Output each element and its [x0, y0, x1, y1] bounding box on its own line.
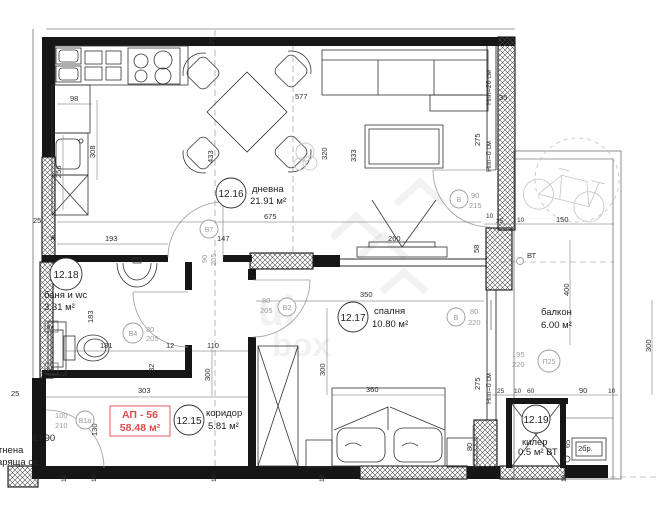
annotation-b1-entry: 100 210 В1а 130 — [55, 411, 99, 436]
window-h-p25: 220 — [512, 360, 525, 369]
window-h-bedroom: 220 — [468, 318, 481, 327]
door-w-b4: 80 — [146, 325, 154, 334]
dim-256: 256 — [54, 165, 63, 178]
room-storage-number: 12.19 — [523, 415, 548, 426]
dim-110: 110 — [207, 341, 219, 350]
room-living-name: дневна — [252, 184, 284, 195]
room-corridor-number: 12.15 — [176, 416, 201, 427]
dim-275-bedroom: 275 — [473, 377, 482, 390]
watermark: ui box — [258, 182, 444, 363]
room-bedroom-name: спалня — [374, 306, 405, 317]
stove — [128, 48, 180, 84]
dim-90: 90 — [579, 386, 587, 395]
room-bedroom-label: 12.17 спалня 10.80 м² — [338, 302, 408, 332]
dim-65: 65 — [563, 440, 572, 448]
dim-60: 60 — [527, 388, 535, 395]
room-storage-area: 0.5 м² ВТ — [518, 447, 558, 458]
dishwasher — [52, 175, 88, 215]
dim-400: 400 — [562, 283, 571, 296]
dim-10-section: 10 — [211, 474, 218, 482]
dim-300-balcony: 300 — [644, 339, 653, 352]
door-w-b1: 100 — [55, 411, 68, 420]
star-mark: * — [50, 232, 56, 249]
window-w-p25: 195 — [512, 350, 525, 359]
dim-360: 360 — [366, 385, 379, 394]
level-npp0-living: Нпп=0 см — [486, 141, 493, 172]
coffee-table — [365, 125, 443, 168]
dim-25-balc: 25 — [496, 218, 504, 225]
door-h-b7: 205 — [209, 253, 218, 266]
dim-260: 260 — [388, 234, 401, 243]
ov-label: ов — [47, 366, 55, 373]
door-offset-130: 130 — [90, 423, 99, 436]
dim-320: 320 — [320, 147, 329, 160]
door-h-balcony: 215 — [469, 201, 482, 210]
dim-80-bed: 80 — [465, 443, 474, 451]
room-bath-number: 12.18 — [53, 270, 78, 281]
floor-plan-svg: ui box — [0, 0, 660, 520]
watermark-chevron — [382, 272, 426, 292]
room-living-number: 12.16 — [218, 189, 243, 200]
watermark-chevron — [332, 216, 380, 238]
room-corridor-area: 5.81 м² — [208, 421, 239, 432]
dim-25-left2: 25 — [11, 389, 19, 398]
annotation-b4: В4 80 205 — [123, 323, 159, 343]
level-npp26: Нпп=26 см — [486, 70, 493, 105]
nightstand-right — [447, 438, 477, 467]
room-storage-label: 12.19 килер 0.5 м² ВТ 2бр. — [518, 405, 593, 458]
room-bath-area: 3.31 м² — [44, 302, 75, 313]
washbasin — [117, 258, 157, 287]
apartment-label: АП - 56 58.48 м² — [110, 406, 170, 436]
dim-10-section: 10 — [61, 474, 68, 482]
fire-door-rating: EI 90 — [33, 433, 55, 444]
dim-577: 577 — [295, 92, 308, 101]
watermark-line2: box — [272, 326, 331, 363]
fire-door-line3: варяща се — [0, 457, 38, 468]
vt-label: ВТ — [527, 251, 537, 260]
room-corridor-label: 12.15 коридор 5.81 м² — [174, 405, 242, 435]
room-balcony-name: балкон — [541, 307, 572, 318]
dim-275-living: 275 — [473, 133, 482, 146]
dim-147: 147 — [217, 234, 230, 243]
dim-top-25: 25 — [207, 37, 216, 45]
window-code-bedroom: В — [454, 315, 459, 322]
annotation-p25: 195 220 П25 — [512, 350, 560, 372]
dining-table — [178, 46, 317, 179]
coffee-table-inner — [369, 129, 439, 164]
door-h-b4: 205 — [146, 334, 159, 343]
room-corridor-name: коридор — [206, 408, 242, 419]
dim-350: 350 — [360, 290, 373, 299]
dim-25-balc2: 25 — [497, 388, 505, 395]
dim-181: 181 — [100, 341, 113, 350]
door-code-b7: В7 — [205, 227, 214, 234]
dim-308: 308 — [88, 145, 97, 158]
window-code-p25: П25 — [543, 359, 556, 366]
dim-300-corridor: 300 — [203, 368, 212, 381]
dim-10-section: 10 — [319, 474, 326, 482]
dim-25-left: 25 — [33, 216, 41, 225]
dim-183: 183 — [86, 310, 95, 323]
nightstand-left — [306, 440, 332, 467]
fire-door-line2: ътнена — [0, 445, 24, 456]
level-npp0-bedroom: Нпп=0 см — [486, 373, 493, 404]
dim-35: 35 — [499, 93, 507, 102]
dim-10-balc: 10 — [486, 213, 494, 220]
room-bath-name: баня и wc — [44, 290, 87, 301]
dim-300-bedroom: 300 — [318, 363, 327, 376]
door-h-b1: 210 — [55, 421, 68, 430]
fire-door-note: EI 90 ътнена варяща се — [0, 433, 55, 468]
dim-12: 12 — [166, 341, 174, 350]
door-code-balcony: В — [457, 197, 462, 204]
sofa — [322, 50, 488, 111]
apartment-area: 58.48 м² — [120, 422, 161, 434]
vk-label: вк — [47, 324, 53, 331]
bicycle-zone — [535, 138, 619, 222]
dim-32: 32 — [147, 364, 156, 372]
chair — [270, 46, 316, 92]
chair — [178, 48, 224, 94]
door-w-b7: 90 — [200, 255, 209, 263]
door-w-balcony: 90 — [471, 191, 479, 200]
dim-10-section: 10 — [561, 474, 568, 482]
dim-150: 150 — [556, 215, 569, 224]
ac-count: 2бр. — [578, 444, 593, 453]
wardrobe — [258, 346, 298, 466]
dim-10-balc2: 10 — [517, 217, 525, 224]
dim-303: 303 — [138, 386, 151, 395]
chair — [178, 132, 224, 178]
dim-675: 675 — [264, 212, 277, 221]
annotation-bedroom-window: В 80 220 — [447, 307, 481, 327]
floor-plan-page: ui box — [0, 0, 660, 520]
dim-98: 98 — [70, 94, 78, 103]
room-bedroom-number: 12.17 — [340, 313, 365, 324]
door-h-b2: 205 — [260, 306, 273, 315]
kitchen-counter — [52, 46, 188, 215]
dim-10-balc4: 10 — [608, 388, 616, 395]
door-code-b4: В4 — [129, 331, 138, 338]
door-code-b2: В2 — [283, 305, 292, 312]
watermark-chevron — [396, 182, 444, 204]
apartment-code: АП - 56 — [122, 409, 158, 421]
room-living-label: 12.16 дневна 21.91 м² — [216, 178, 286, 208]
dim-433: 433 — [206, 150, 215, 163]
room-bedroom-area: 10.80 м² — [372, 319, 408, 330]
dim-58: 58 — [472, 245, 481, 253]
window-w-bedroom: 80 — [470, 307, 478, 316]
dim-333: 333 — [349, 149, 358, 162]
dim-193: 193 — [105, 234, 118, 243]
plant — [294, 143, 317, 170]
door-w-b2: 80 — [262, 296, 270, 305]
annotation-balcony-door: В 90 215 — [450, 190, 482, 210]
bed — [332, 388, 445, 466]
dim-10-section: 10 — [91, 474, 98, 482]
room-living-area: 21.91 м² — [250, 196, 286, 207]
room-balcony-area: 6.00 м² — [541, 320, 572, 331]
dim-10-balc3: 10 — [514, 388, 522, 395]
chair — [270, 131, 316, 177]
